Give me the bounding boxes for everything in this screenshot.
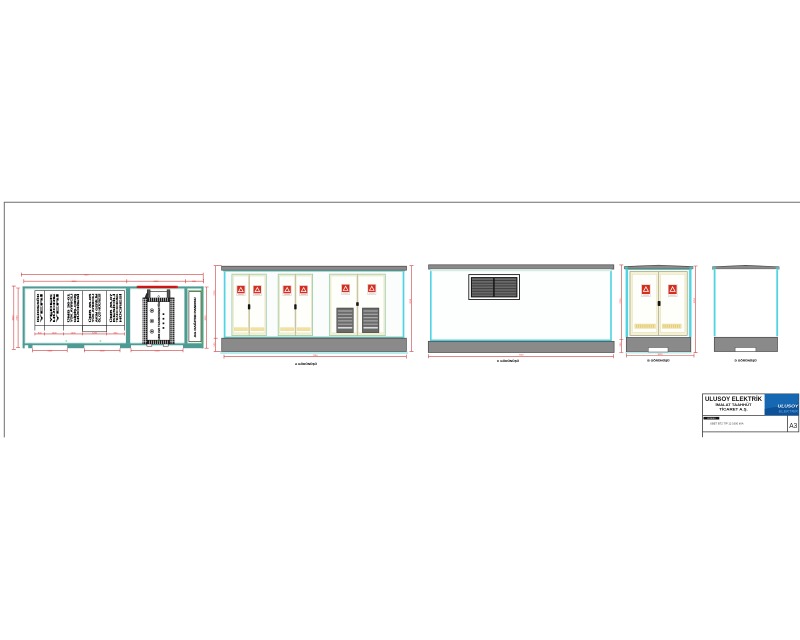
svg-text:3030: 3030 xyxy=(12,315,14,321)
svg-text:7160: 7160 xyxy=(313,355,319,357)
svg-text:ÜMB 36-01: ÜMB 36-01 xyxy=(67,292,70,322)
svg-text:1600 kVA TRANSFORMATÖR: 1600 kVA TRANSFORMATÖR xyxy=(158,301,161,339)
svg-text:AKIM GERİLİM: AKIM GERİLİM xyxy=(95,294,98,323)
svg-text:1000: 1000 xyxy=(71,332,77,334)
svg-text:TİCARET A.Ş.: TİCARET A.Ş. xyxy=(719,407,748,412)
svg-text:2250: 2250 xyxy=(154,281,160,283)
svg-text:ELEKTRİK: ELEKTRİK xyxy=(779,410,799,414)
svg-text:B GÖRÜNÜŞÜ: B GÖRÜNÜŞÜ xyxy=(647,359,670,363)
svg-text:3250: 3250 xyxy=(410,298,412,304)
svg-text:3250: 3250 xyxy=(694,297,696,303)
svg-text:1250: 1250 xyxy=(92,332,98,334)
svg-text:1400: 1400 xyxy=(100,350,106,352)
svg-text:GİRİŞ-ÇIKIŞ: GİRİŞ-ÇIKIŞ xyxy=(74,293,77,322)
svg-text:YERİ: YERİ xyxy=(56,292,59,322)
svg-text:3030: 3030 xyxy=(205,315,207,321)
svg-text:7160: 7160 xyxy=(84,275,90,277)
svg-text:KESİCİLİ: KESİCİLİ xyxy=(113,293,116,323)
svg-text:ULUSOY: ULUSOY xyxy=(778,404,800,409)
svg-text:ÜMB 36-07: ÜMB 36-07 xyxy=(110,292,113,322)
svg-text:HÜCRESİ: HÜCRESİ xyxy=(119,293,122,322)
svg-text:3030: 3030 xyxy=(658,354,664,356)
svg-text:YERİ: YERİ xyxy=(40,292,43,322)
svg-text:HÜCRESİ: HÜCRESİ xyxy=(77,293,80,322)
svg-text:YÜK AYIRICILI: YÜK AYIRICILI xyxy=(71,293,74,322)
svg-text:2720: 2720 xyxy=(620,298,622,304)
svg-text:ÖLÇÜ HÜCRESİ: ÖLÇÜ HÜCRESİ xyxy=(99,293,102,322)
svg-text:4330: 4330 xyxy=(72,281,78,283)
svg-text:A3: A3 xyxy=(789,421,797,430)
svg-text:A GÖRÜNÜŞÜ: A GÖRÜNÜŞÜ xyxy=(295,362,318,366)
svg-text:C GÖRÜNÜŞÜ: C GÖRÜNÜŞÜ xyxy=(497,359,520,363)
svg-text:2100: 2100 xyxy=(155,350,161,352)
svg-text:REDRESÖR: REDRESÖR xyxy=(37,293,40,322)
svg-text:YÜK AYIRICILI: YÜK AYIRICILI xyxy=(92,293,95,322)
svg-text:1400: 1400 xyxy=(47,350,53,352)
svg-text:ÜMB 36-05: ÜMB 36-05 xyxy=(89,292,92,322)
svg-text:1000: 1000 xyxy=(52,332,58,334)
svg-text:7160: 7160 xyxy=(519,355,525,357)
svg-text:HÜCRE: HÜCRE xyxy=(53,292,56,322)
svg-text:TRAFO KORUMA: TRAFO KORUMA xyxy=(116,293,119,322)
svg-text:D GÖRÜNÜŞÜ: D GÖRÜNÜŞÜ xyxy=(735,359,758,363)
svg-text:YEDEK: YEDEK xyxy=(51,293,53,323)
svg-text:2720: 2720 xyxy=(214,290,216,296)
svg-text:KONUSU: KONUSU xyxy=(707,418,716,420)
svg-text:AG DAĞITIM PANOSU: AG DAĞITIM PANOSU xyxy=(194,297,197,338)
svg-text:2750: 2750 xyxy=(17,315,19,321)
